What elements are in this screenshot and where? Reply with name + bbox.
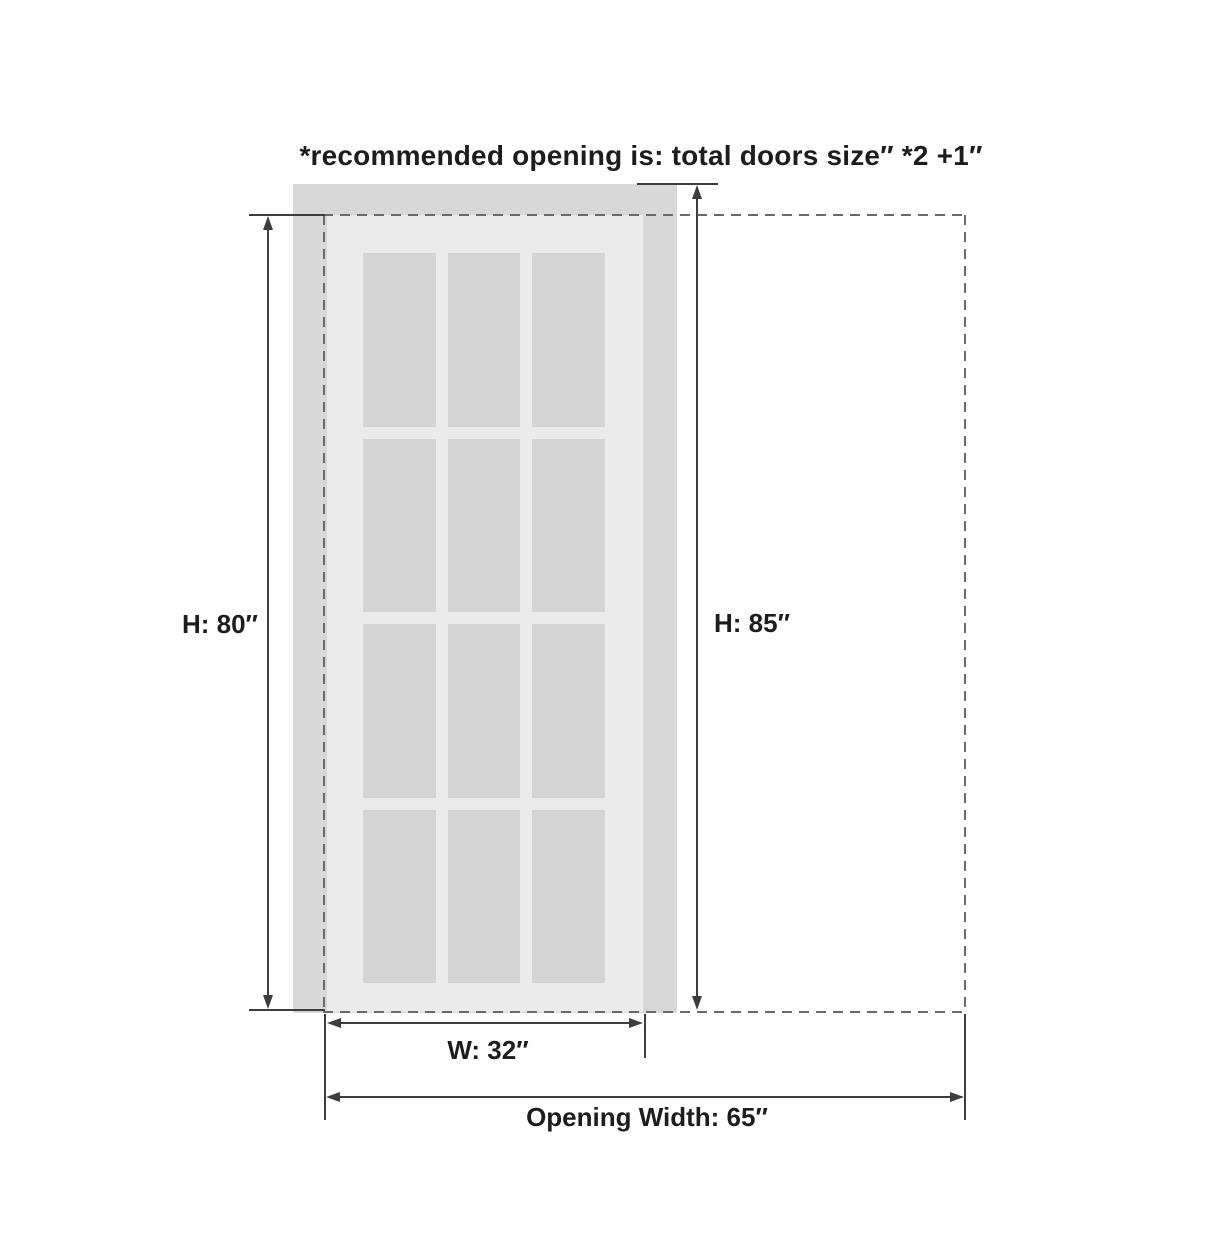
glass-pane bbox=[532, 624, 605, 798]
extension-line-door-width-right bbox=[644, 1014, 646, 1058]
arrow-left-icon bbox=[326, 1092, 340, 1102]
glass-pane bbox=[363, 439, 436, 613]
glass-pane bbox=[363, 624, 436, 798]
door-height-label: H: 80″ bbox=[182, 609, 258, 640]
arrow-up-icon bbox=[692, 185, 702, 199]
tick-line-opening-height-top bbox=[637, 183, 718, 185]
door-sizing-diagram: *recommended opening is: total doors siz… bbox=[0, 0, 1214, 1250]
glass-pane bbox=[363, 253, 436, 427]
arrow-right-icon bbox=[629, 1018, 643, 1028]
opening-dashed-line-top bbox=[323, 214, 966, 216]
door-slab bbox=[327, 215, 643, 1012]
glass-pane-grid bbox=[363, 253, 605, 983]
glass-pane bbox=[448, 439, 521, 613]
arrow-up-icon bbox=[263, 216, 273, 230]
door-width-label: W: 32″ bbox=[447, 1035, 528, 1066]
extension-line-opening-width-right bbox=[964, 1014, 966, 1120]
glass-pane bbox=[532, 253, 605, 427]
glass-pane bbox=[532, 439, 605, 613]
glass-pane bbox=[532, 810, 605, 984]
tick-line-door-height-bottom bbox=[249, 1009, 325, 1011]
glass-pane bbox=[448, 810, 521, 984]
tick-line-door-height-top bbox=[249, 214, 325, 216]
extension-line-opening-width-left bbox=[324, 1014, 326, 1120]
door-width-dimension-line bbox=[330, 1022, 640, 1024]
glass-pane bbox=[448, 624, 521, 798]
recommended-opening-note: *recommended opening is: total doors siz… bbox=[299, 140, 982, 172]
arrow-left-icon bbox=[327, 1018, 341, 1028]
arrow-down-icon bbox=[263, 995, 273, 1009]
opening-dashed-line-bottom bbox=[323, 1011, 966, 1013]
glass-pane bbox=[448, 253, 521, 427]
door-height-dimension-line bbox=[267, 220, 269, 1006]
opening-dashed-line-right bbox=[964, 215, 966, 1012]
arrow-right-icon bbox=[950, 1092, 964, 1102]
glass-pane bbox=[363, 810, 436, 984]
opening-dashed-line-left bbox=[323, 215, 325, 1012]
opening-height-label: H: 85″ bbox=[714, 608, 790, 639]
opening-width-dimension-line bbox=[329, 1096, 962, 1098]
opening-height-dimension-line bbox=[696, 189, 698, 1006]
opening-width-label: Opening Width: 65″ bbox=[526, 1102, 768, 1133]
arrow-down-icon bbox=[692, 996, 702, 1010]
